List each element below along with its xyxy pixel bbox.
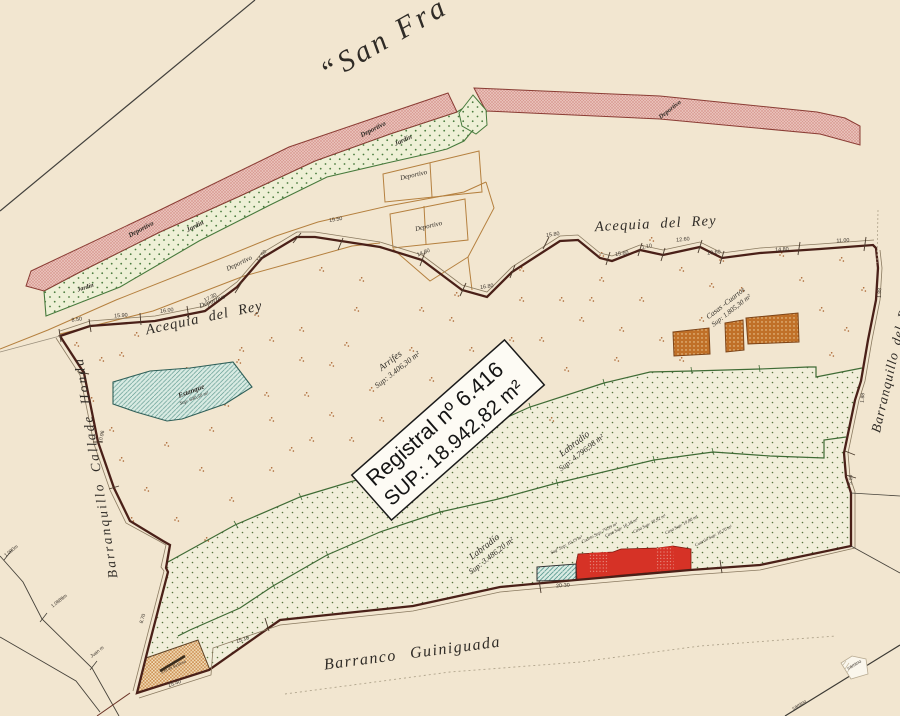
svg-text:20-30: 20-30	[556, 583, 570, 590]
svg-text:14.80: 14.80	[775, 247, 789, 254]
svg-text:1.88: 1.88	[860, 393, 867, 403]
svg-text:12.60: 12.60	[676, 236, 690, 243]
svg-text:5.10: 5.10	[848, 475, 855, 485]
svg-text:1.88: 1.88	[877, 288, 883, 298]
svg-text:11.00: 11.00	[836, 238, 849, 245]
svg-text:10.60: 10.60	[707, 249, 721, 256]
svg-text:15.90: 15.90	[114, 313, 128, 320]
